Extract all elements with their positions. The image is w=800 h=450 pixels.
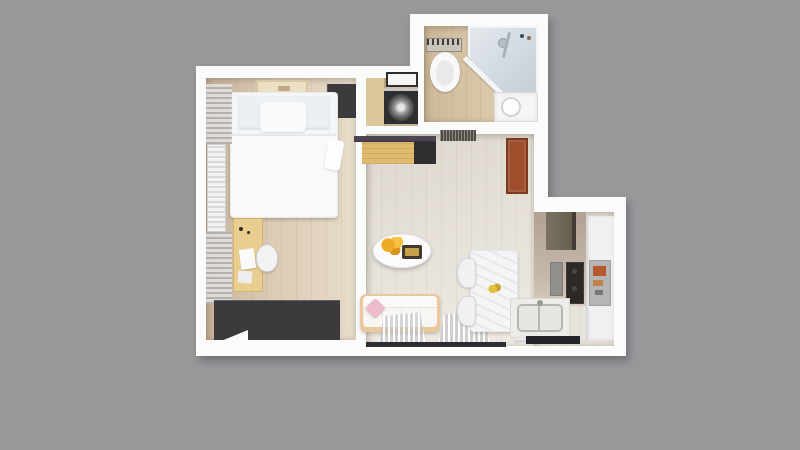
floorplan-scene	[0, 0, 800, 450]
bedroom-curtain-top	[206, 84, 232, 144]
toilet-seat	[436, 60, 454, 86]
bedroom-radiator	[207, 144, 226, 232]
kitchen-sink-counter	[510, 298, 570, 338]
sink-divider	[538, 306, 540, 330]
bedroom-wardrobe-bottom	[214, 300, 340, 340]
desk-item	[247, 231, 250, 234]
shelf-item	[593, 280, 603, 286]
sheer-curtain	[378, 312, 426, 346]
kitchen-panel	[550, 262, 563, 296]
toilet-cistern	[426, 38, 462, 52]
bathroom-vanity	[494, 92, 538, 122]
sideboard-dark-section	[414, 142, 436, 164]
dining-chair	[457, 296, 476, 326]
stove-burner	[572, 286, 577, 291]
table-flower	[487, 283, 501, 295]
ceiling-light-core	[278, 86, 290, 91]
bathroom-bottles	[520, 34, 524, 38]
oak-sideboard	[362, 142, 414, 164]
fridge-side-shelf	[589, 260, 611, 306]
dining-chair	[457, 258, 476, 288]
bed-pillow	[260, 102, 306, 132]
shelf-item	[595, 290, 603, 295]
entry-door	[506, 138, 528, 194]
kitchen-upper-cabinet	[546, 212, 576, 250]
bedroom-curtain-bottom	[206, 232, 232, 304]
faucet	[537, 300, 543, 306]
kitchen-sink	[517, 304, 563, 332]
serving-tray	[402, 245, 422, 259]
desk-paper	[238, 270, 253, 283]
tray-contents	[405, 248, 419, 256]
desk-item	[239, 227, 243, 231]
double-bed	[230, 92, 338, 218]
desk-paper	[239, 248, 257, 270]
kitchen-window-sill	[526, 336, 580, 344]
window-frame	[366, 342, 506, 347]
shelf-item	[593, 266, 606, 276]
stove-burner	[572, 269, 577, 274]
washing-machine-drum	[388, 94, 414, 121]
hallway-cabinet	[366, 78, 386, 126]
bathroom-sink	[501, 97, 521, 117]
hallway-wall-shelf	[386, 72, 418, 87]
desk-chair	[256, 244, 278, 272]
doormat	[440, 130, 476, 141]
toilet	[430, 52, 460, 92]
washing-machine	[384, 88, 418, 124]
bed-blanket	[231, 134, 337, 216]
